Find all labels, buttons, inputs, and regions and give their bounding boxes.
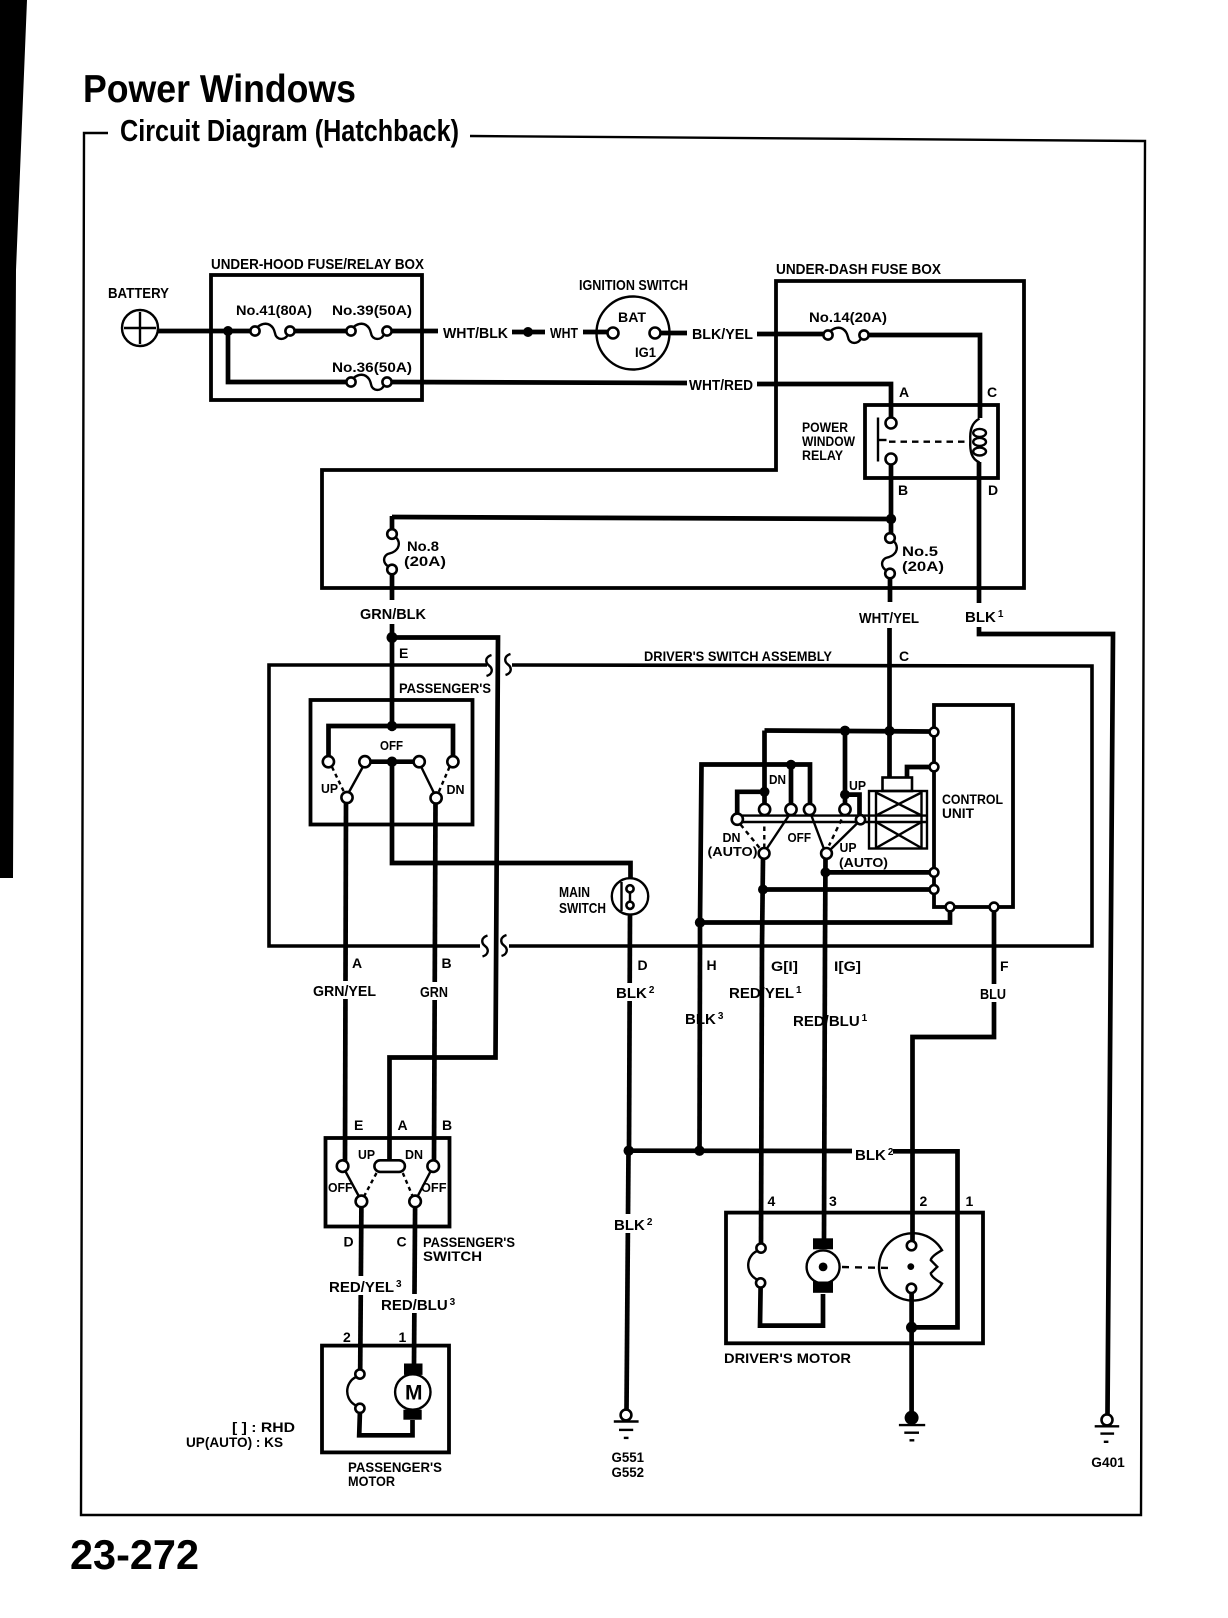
svg-text:(AUTO): (AUTO): [839, 855, 888, 870]
svg-text:A: A: [899, 384, 909, 400]
svg-text:C: C: [987, 384, 997, 400]
svg-text:UP(AUTO) : KS: UP(AUTO) : KS: [186, 1434, 283, 1450]
svg-text:BLU: BLU: [980, 986, 1006, 1003]
svg-text:C: C: [899, 648, 909, 664]
svg-text:No.14(20A): No.14(20A): [809, 309, 887, 325]
svg-text:D: D: [638, 957, 648, 973]
svg-text:SWITCH: SWITCH: [559, 900, 606, 917]
svg-text:2: 2: [343, 1329, 351, 1345]
svg-text:D: D: [988, 482, 998, 498]
svg-text:DN: DN: [447, 782, 465, 797]
svg-text:DN: DN: [723, 830, 741, 845]
svg-text:Circuit Diagram (Hatchback): Circuit Diagram (Hatchback): [120, 113, 459, 148]
svg-text:IG1: IG1: [635, 344, 656, 360]
svg-text:1: 1: [966, 1193, 974, 1209]
svg-text:A: A: [398, 1117, 408, 1133]
svg-text:GRN/BLK: GRN/BLK: [360, 606, 426, 623]
svg-text:RED/YEL1: RED/YEL1: [729, 985, 802, 1002]
svg-text:RED/YEL3: RED/YEL3: [329, 1279, 402, 1296]
svg-text:POWER: POWER: [802, 420, 848, 435]
svg-text:SWITCH: SWITCH: [423, 1248, 482, 1264]
svg-text:BLK/YEL: BLK/YEL: [692, 326, 753, 343]
svg-text:IGNITION SWITCH: IGNITION SWITCH: [579, 277, 688, 294]
svg-text:B: B: [442, 1117, 452, 1133]
svg-text:WHT: WHT: [550, 325, 578, 342]
svg-text:RED/BLU1: RED/BLU1: [793, 1013, 868, 1030]
svg-text:BATTERY: BATTERY: [108, 285, 169, 302]
svg-text:A: A: [352, 955, 362, 971]
svg-text:DRIVER'S SWITCH ASSEMBLY: DRIVER'S SWITCH ASSEMBLY: [644, 648, 833, 664]
svg-text:No.39(50A): No.39(50A): [332, 302, 412, 318]
svg-text:UNDER-DASH FUSE BOX: UNDER-DASH FUSE BOX: [776, 261, 941, 278]
svg-text:B: B: [442, 955, 452, 971]
svg-text:D: D: [344, 1234, 354, 1250]
svg-text:CONTROL: CONTROL: [942, 792, 1003, 807]
svg-text:3: 3: [829, 1193, 837, 1209]
svg-text:OFF: OFF: [788, 830, 812, 845]
svg-text:B: B: [898, 482, 908, 498]
svg-text:G401: G401: [1091, 1454, 1125, 1470]
svg-text:DN: DN: [769, 772, 786, 787]
svg-text:(20A): (20A): [404, 553, 446, 569]
svg-text:No.36(50A): No.36(50A): [332, 359, 412, 375]
svg-text:MAIN: MAIN: [559, 884, 590, 901]
svg-text:UP: UP: [358, 1147, 375, 1162]
svg-text:M: M: [405, 1382, 423, 1405]
svg-text:2: 2: [920, 1193, 928, 1209]
svg-text:MOTOR: MOTOR: [348, 1473, 395, 1489]
svg-text:F: F: [1000, 958, 1009, 974]
svg-text:G552: G552: [612, 1464, 645, 1480]
svg-text:(AUTO): (AUTO): [708, 844, 758, 859]
svg-text:G551: G551: [612, 1449, 645, 1465]
svg-text:1: 1: [399, 1329, 407, 1345]
svg-text:C: C: [397, 1234, 407, 1250]
svg-text:E: E: [354, 1117, 363, 1133]
svg-text:DRIVER'S MOTOR: DRIVER'S MOTOR: [724, 1350, 851, 1366]
svg-text:No.8: No.8: [407, 538, 439, 554]
svg-text:UP: UP: [840, 840, 857, 855]
svg-text:I[G]: I[G]: [834, 958, 861, 974]
svg-text:G[I]: G[I]: [771, 958, 798, 974]
svg-text:OFF: OFF: [328, 1180, 353, 1195]
svg-text:PASSENGER'S: PASSENGER'S: [399, 680, 491, 696]
svg-text:No.41(80A): No.41(80A): [236, 302, 312, 318]
svg-text:UP: UP: [321, 781, 338, 796]
svg-text:23-272: 23-272: [70, 1531, 199, 1578]
svg-text:H: H: [707, 957, 717, 973]
svg-text:GRN: GRN: [420, 984, 448, 1001]
svg-text:RELAY: RELAY: [802, 448, 843, 463]
svg-text:WINDOW: WINDOW: [802, 434, 855, 449]
svg-text:UP: UP: [849, 778, 866, 793]
svg-text:GRN/YEL: GRN/YEL: [313, 983, 376, 1000]
svg-text:(20A): (20A): [902, 558, 944, 574]
svg-text:[ ] : RHD: [ ] : RHD: [232, 1419, 295, 1435]
svg-text:WHT/BLK: WHT/BLK: [443, 325, 508, 342]
svg-text:BAT: BAT: [618, 309, 646, 325]
svg-text:WHT/RED: WHT/RED: [689, 377, 753, 394]
svg-text:Power Windows: Power Windows: [83, 68, 356, 111]
svg-text:4: 4: [768, 1193, 776, 1209]
svg-text:RED/BLU3: RED/BLU3: [381, 1297, 456, 1314]
svg-text:UNIT: UNIT: [942, 806, 975, 821]
svg-text:UNDER-HOOD FUSE/RELAY BOX: UNDER-HOOD FUSE/RELAY BOX: [211, 256, 424, 273]
svg-text:No.5: No.5: [902, 543, 938, 559]
svg-text:WHT/YEL: WHT/YEL: [859, 610, 919, 627]
svg-text:OFF: OFF: [380, 738, 403, 753]
svg-text:DN: DN: [405, 1147, 423, 1162]
svg-text:E: E: [399, 645, 408, 661]
